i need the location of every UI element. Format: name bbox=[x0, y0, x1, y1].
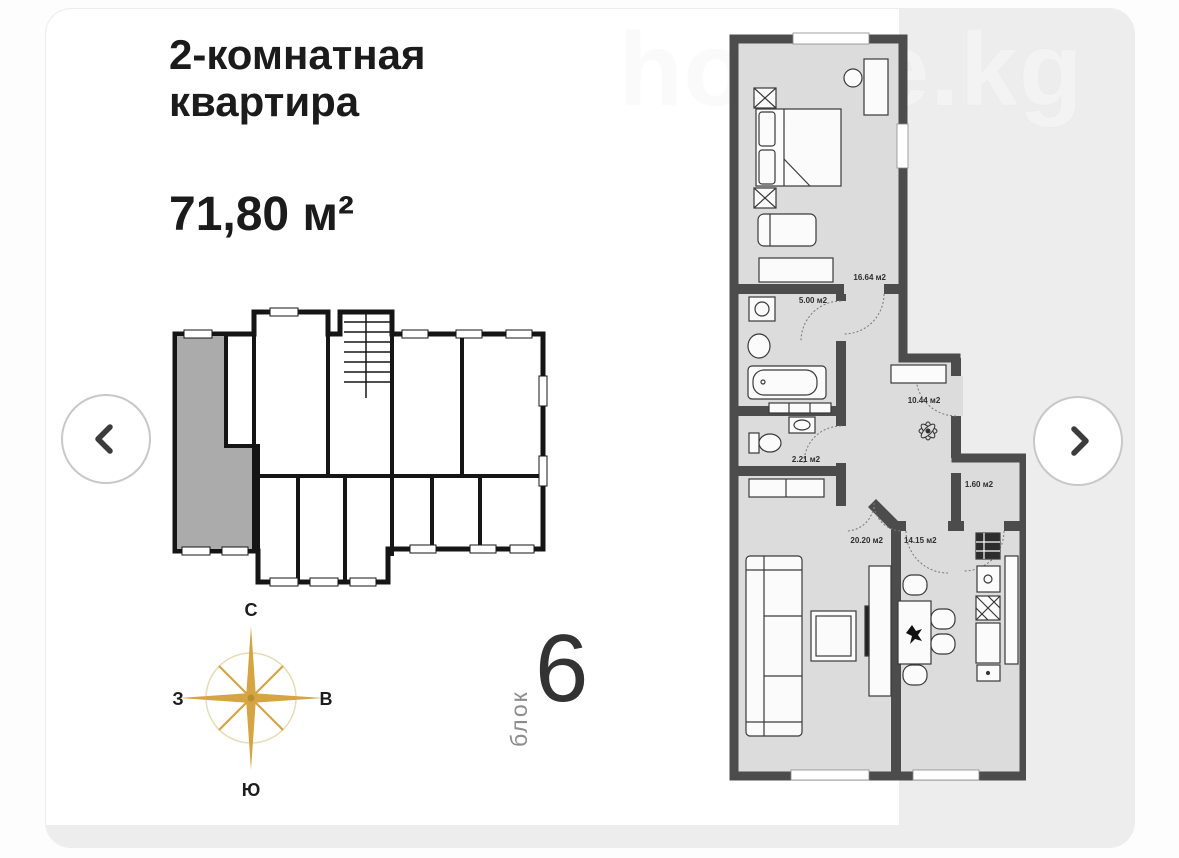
room-label-bathroom: 5.00 м2 bbox=[799, 296, 828, 305]
room-label-hallway: 10.44 м2 bbox=[908, 396, 941, 405]
apartment-area: 71,80 м² bbox=[169, 187, 589, 242]
image-gray-bottom-strip bbox=[46, 825, 1134, 847]
room-label-toilet: 2.21 м2 bbox=[792, 455, 821, 464]
building-overview-plan bbox=[170, 306, 548, 591]
room-label-bedroom: 16.64 м2 bbox=[853, 273, 886, 282]
entrance-opening bbox=[950, 376, 963, 416]
room-label-kitchen: 14.15 м2 bbox=[904, 536, 937, 545]
block-number: 6 bbox=[535, 619, 588, 720]
carousel-prev-button[interactable] bbox=[61, 394, 151, 484]
chevron-left-icon bbox=[89, 422, 123, 456]
page: { "card": { "title_line1": "2-комнатная"… bbox=[0, 0, 1179, 858]
chevron-right-icon bbox=[1061, 424, 1095, 458]
apartment-title-line1: 2-комнатная bbox=[169, 31, 589, 78]
room-label-living-room: 20.20 м2 bbox=[850, 536, 883, 545]
block-label: блок bbox=[506, 655, 533, 747]
room-label-closet: 1.60 м2 bbox=[965, 480, 994, 489]
carousel-next-button[interactable] bbox=[1033, 396, 1123, 486]
listing-image-card: house.kg 2-комнатная квартира 71,80 м² bbox=[45, 8, 1135, 848]
compass-rose: С Ю З В bbox=[166, 596, 346, 801]
apartment-title: 2-комнатная квартира bbox=[169, 31, 589, 125]
compass-west-label: З bbox=[172, 689, 183, 709]
apartment-title-line2: квартира bbox=[169, 78, 589, 125]
compass-east-label: В bbox=[320, 689, 333, 709]
apartment-floor-plan: 16.64 м2 5.00 м2 2.21 м2 10.44 м2 1.60 м… bbox=[726, 31, 1026, 781]
compass-north-label: С bbox=[245, 600, 258, 620]
chandelier-icon bbox=[919, 422, 937, 440]
compass-center bbox=[248, 695, 255, 702]
compass-south-label: Ю bbox=[242, 780, 261, 800]
